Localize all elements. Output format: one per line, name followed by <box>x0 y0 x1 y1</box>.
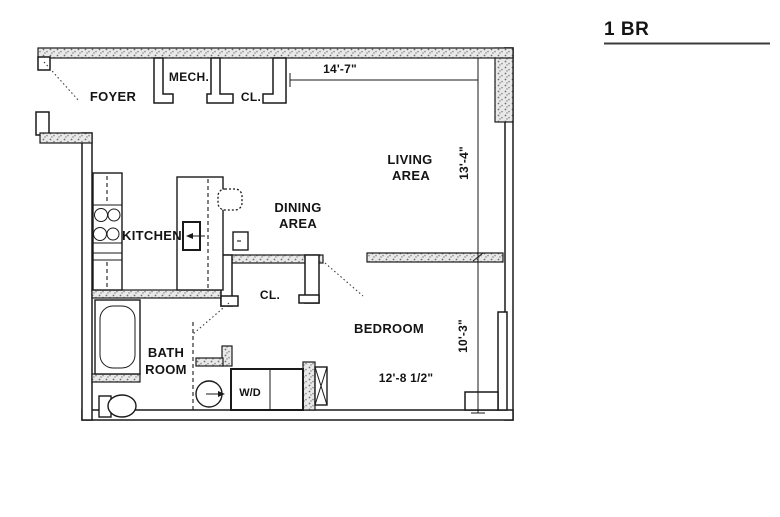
dim-living-height: 13'-4" <box>457 146 471 180</box>
closet-top-right-wall <box>263 58 286 103</box>
right-wall-upper-block <box>495 48 513 122</box>
tub-south-wall <box>92 374 140 382</box>
plan-title-block: 1 BR <box>604 19 770 44</box>
entry-jamb-upper <box>38 57 50 70</box>
closet-mid-label: CL. <box>260 288 280 302</box>
dimension-lines <box>290 58 485 413</box>
kitchen-counter <box>93 173 122 290</box>
duct-x-icon <box>315 367 327 405</box>
floorplan-page: FOYER MECH. CL. LIVING AREA DINING AREA … <box>0 0 780 517</box>
bedroom-door-swing <box>325 263 363 296</box>
foyer-label: FOYER <box>90 89 137 104</box>
dim-bedroom-height: 10'-3" <box>456 319 470 353</box>
mech-right-wall <box>207 58 233 103</box>
dim-bedroom-width: 12'-8 1/2" <box>379 371 434 385</box>
bedroom-label: BEDROOM <box>354 321 424 336</box>
toilet-icon <box>99 395 136 417</box>
bath-door-swing <box>193 303 229 334</box>
kitchen-sink-icon <box>218 189 242 210</box>
mech-label: MECH. <box>169 70 209 84</box>
living-label-1: LIVING <box>387 152 432 167</box>
bedroom-pilaster <box>498 312 507 410</box>
bath-label-2: ROOM <box>145 362 187 377</box>
bath-sink-icon <box>196 381 225 407</box>
living-label-2: AREA <box>392 168 430 183</box>
closet-top-label: CL. <box>241 90 261 104</box>
floorplan-drawing: FOYER MECH. CL. LIVING AREA DINING AREA … <box>0 0 780 517</box>
dining-label-1: DINING <box>274 200 321 215</box>
left-wall <box>82 133 92 420</box>
washer-dryer-label: W/D <box>239 387 260 399</box>
kitchen-peninsula <box>177 177 248 290</box>
foyer-wall <box>40 133 92 143</box>
entry-jamb-lower <box>36 112 49 135</box>
kitchen-south-wall <box>92 290 223 298</box>
kitchen-label: KITCHEN <box>122 228 182 243</box>
bath-label-1: BATH <box>148 345 184 360</box>
closet-mid-left-foot <box>221 296 238 306</box>
bottom-wall <box>82 410 513 420</box>
laundry-bar-wall <box>196 358 223 366</box>
dining-label-2: AREA <box>279 216 317 231</box>
living-bedroom-wall <box>367 253 503 262</box>
top-wall <box>38 48 513 58</box>
laundry-right-wall <box>303 362 315 410</box>
dim-top-width: 14'-7" <box>323 62 357 76</box>
bedroom-corner-unit <box>465 392 498 410</box>
plan-title: 1 BR <box>604 19 649 40</box>
closet-mid-right-foot <box>299 295 319 303</box>
bathtub-icon <box>95 300 140 374</box>
